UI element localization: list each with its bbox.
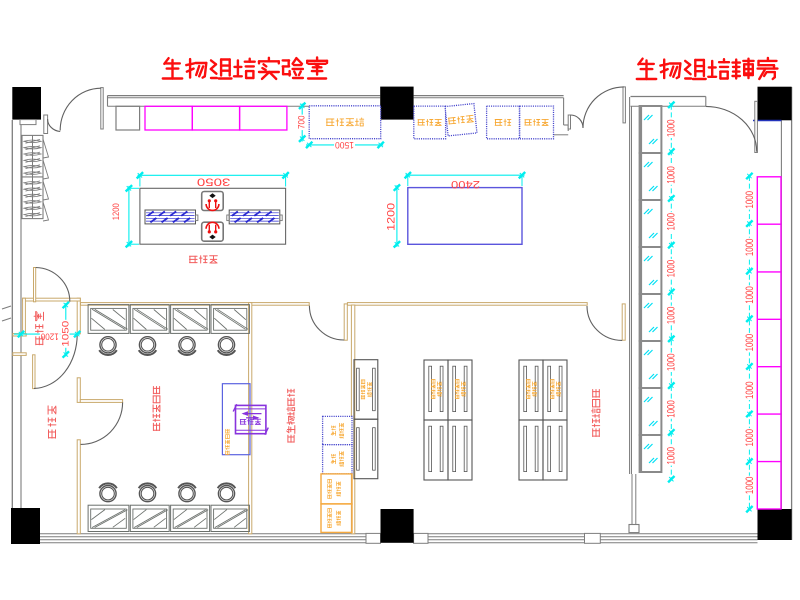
svg-text:1000: 1000: [666, 260, 678, 278]
svg-text:1000: 1000: [744, 191, 756, 209]
svg-text:1000: 1000: [666, 447, 678, 465]
svg-text:1000: 1000: [744, 239, 756, 257]
svg-text:1000: 1000: [744, 429, 756, 447]
svg-text:1200: 1200: [385, 203, 397, 231]
svg-text:1000: 1000: [666, 166, 678, 184]
svg-text:1000: 1000: [666, 400, 678, 418]
svg-text:1000: 1000: [744, 334, 756, 352]
svg-text:2400: 2400: [451, 178, 480, 190]
svg-text:1000: 1000: [744, 286, 756, 304]
svg-text:1000: 1000: [744, 477, 756, 495]
svg-text:1200: 1200: [111, 203, 122, 220]
svg-text:1200: 1200: [41, 331, 59, 341]
svg-text:1000: 1000: [666, 353, 678, 371]
svg-text:1050: 1050: [60, 321, 70, 347]
svg-text:1000: 1000: [666, 307, 678, 325]
svg-text:1000: 1000: [666, 119, 678, 137]
svg-text:1000: 1000: [744, 381, 756, 399]
svg-text:3050: 3050: [197, 176, 231, 188]
svg-text:1500: 1500: [335, 139, 354, 150]
svg-text:700: 700: [296, 116, 307, 130]
svg-text:1000: 1000: [666, 213, 678, 231]
